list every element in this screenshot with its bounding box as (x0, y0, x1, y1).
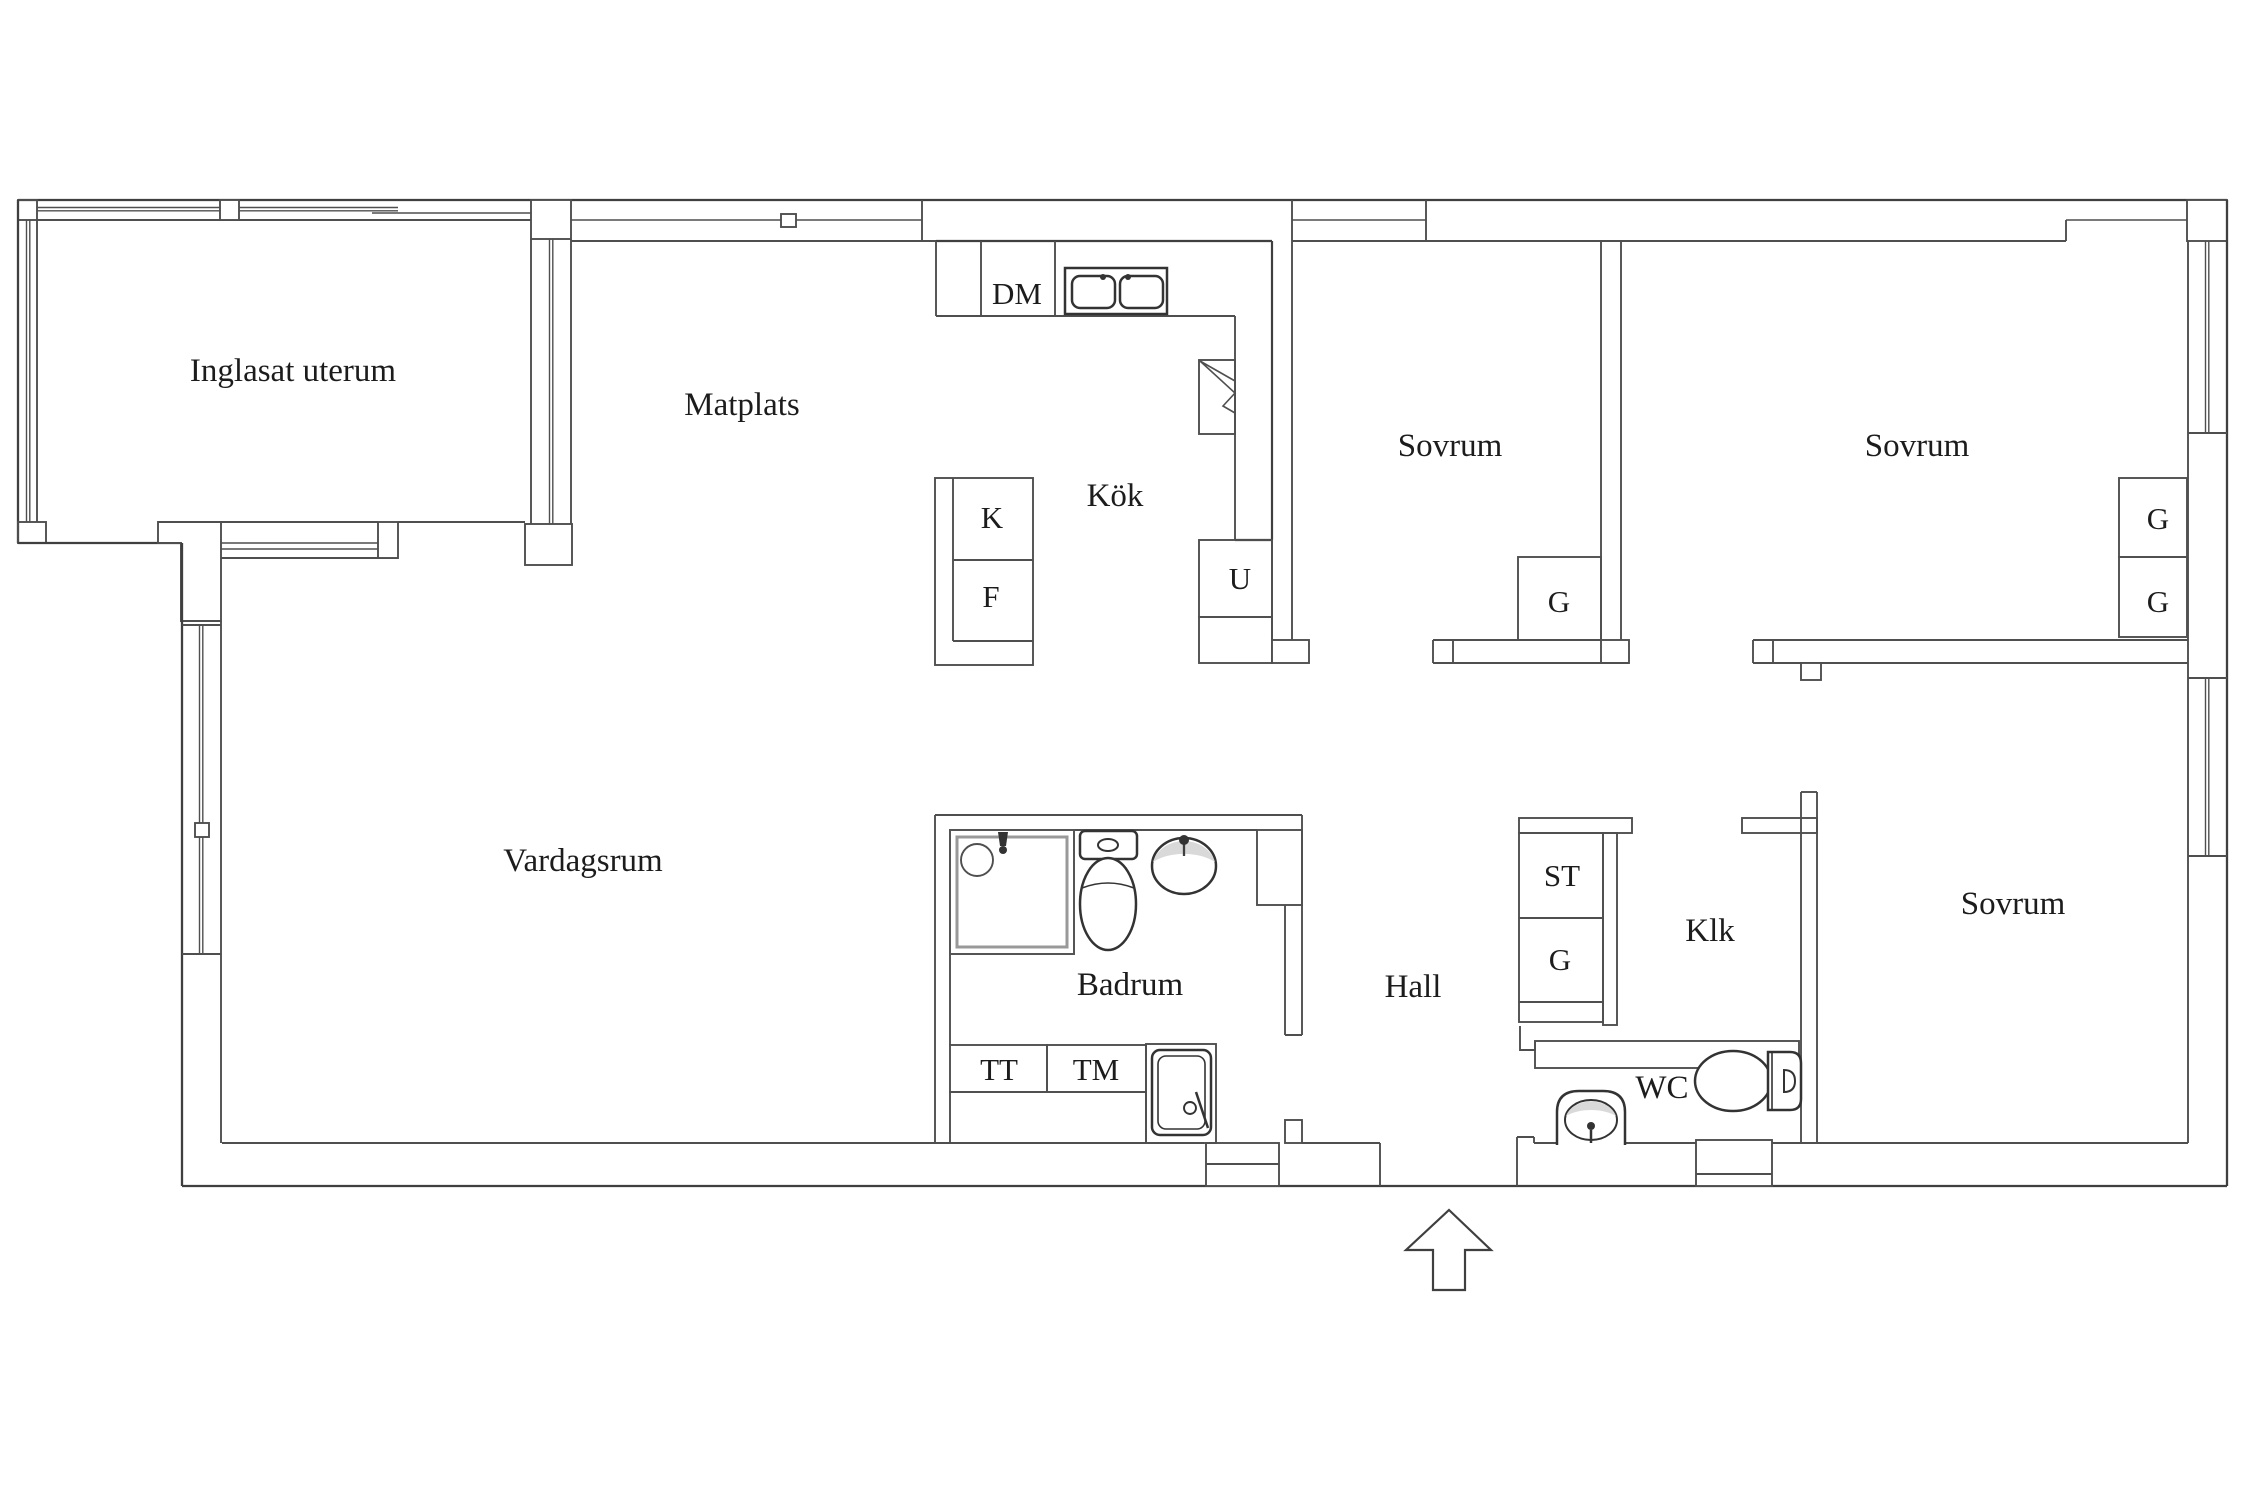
svg-text:Inglasat uterum: Inglasat uterum (190, 353, 397, 389)
svg-text:Matplats: Matplats (684, 387, 799, 423)
svg-text:Vardagsrum: Vardagsrum (503, 843, 663, 879)
svg-text:Sovrum: Sovrum (1961, 886, 2066, 922)
svg-text:Hall: Hall (1385, 969, 1442, 1005)
svg-text:ST: ST (1544, 858, 1580, 893)
svg-text:U: U (1229, 561, 1251, 596)
svg-text:G: G (1548, 584, 1570, 619)
svg-text:F: F (982, 579, 999, 614)
svg-text:G: G (1549, 942, 1571, 977)
svg-text:Klk: Klk (1685, 913, 1735, 949)
svg-text:WC: WC (1635, 1070, 1688, 1106)
svg-text:G: G (2147, 501, 2169, 536)
svg-text:Sovrum: Sovrum (1398, 428, 1503, 464)
svg-text:Sovrum: Sovrum (1865, 428, 1970, 464)
svg-text:K: K (981, 500, 1004, 535)
svg-text:Kök: Kök (1087, 478, 1144, 514)
svg-text:Badrum: Badrum (1077, 967, 1184, 1003)
svg-text:G: G (2147, 584, 2169, 619)
svg-text:DM: DM (992, 276, 1042, 311)
svg-text:TM: TM (1073, 1052, 1120, 1087)
svg-text:TT: TT (980, 1052, 1018, 1087)
